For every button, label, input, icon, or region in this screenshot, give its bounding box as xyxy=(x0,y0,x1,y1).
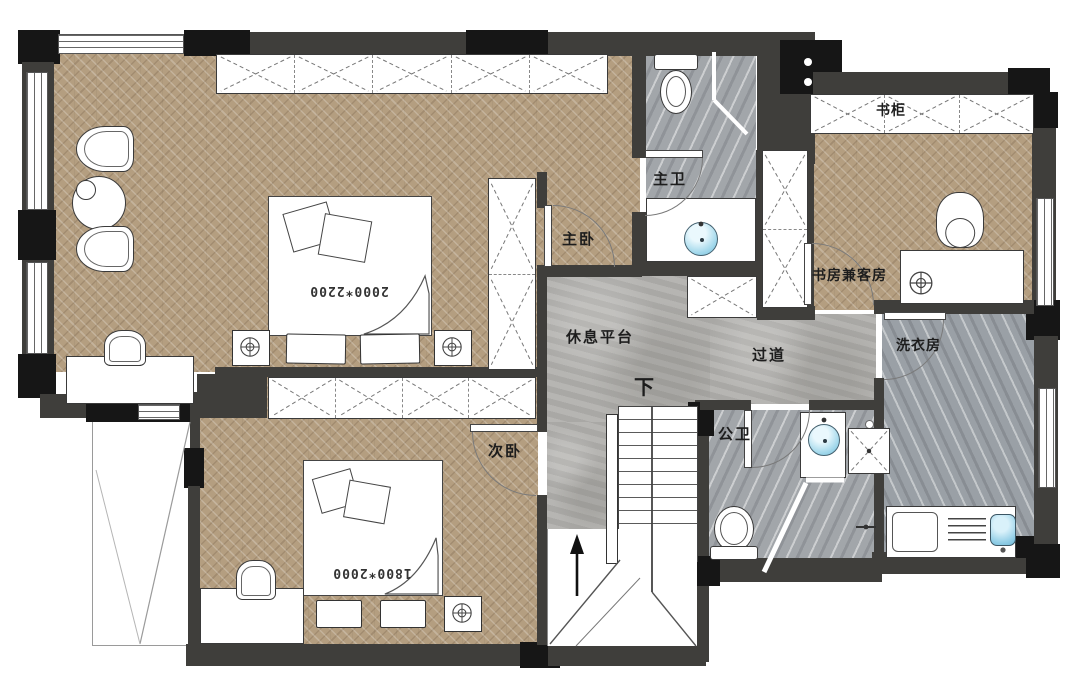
hall-closet xyxy=(687,276,757,318)
master-bed-size-label: 2000*2200 xyxy=(269,283,429,298)
wall-top-bath xyxy=(548,32,760,56)
wall-stub-masterdoor xyxy=(537,172,547,208)
label-laundry: 洗衣房 xyxy=(896,338,941,352)
lounge-chair xyxy=(76,126,134,172)
wall-column-right3 xyxy=(1026,544,1060,578)
wall-column-top1 xyxy=(184,30,250,56)
wall-pubbath-top-right xyxy=(809,400,880,410)
wall-column-left2 xyxy=(18,354,56,398)
label-stairs-down: 下 xyxy=(634,378,654,398)
label-rest-platform: 休息平台 xyxy=(566,330,634,345)
study-door-leaf xyxy=(804,243,812,305)
floor-plan: 2000*2200 1800*2000 xyxy=(0,0,1080,684)
wall-block-wardrobe-left xyxy=(197,374,267,418)
bench-cushion xyxy=(286,333,347,364)
label-corridor: 过道 xyxy=(752,348,786,363)
window-study xyxy=(1036,198,1054,306)
desk-lamp-symbol-icon xyxy=(908,270,934,296)
lamp-symbol-icon xyxy=(451,602,473,624)
master-desk-chair xyxy=(104,330,146,366)
wall-top-study xyxy=(813,72,1011,94)
window-left-lower xyxy=(26,262,48,354)
wall-top-master xyxy=(250,32,466,56)
master-wardrobe-side xyxy=(488,178,536,370)
washer-door xyxy=(990,514,1016,546)
bench-cushion xyxy=(380,600,426,628)
wall-column-top2 xyxy=(466,30,548,56)
wall-bottom-secondbed xyxy=(186,644,548,666)
terrace-area xyxy=(92,420,196,646)
wall-column-left1 xyxy=(18,210,56,260)
second-bedroom-door-leaf xyxy=(470,424,538,432)
stair-landing xyxy=(547,529,697,646)
wall-column-secondbed xyxy=(184,448,204,488)
table-kettle xyxy=(76,180,96,200)
label-bookcase: 书柜 xyxy=(876,103,906,117)
wall-pubbath-bottom xyxy=(700,558,882,582)
wall-bottom-stairs xyxy=(548,646,706,666)
bench-cushion xyxy=(360,333,421,364)
master-bath-door-leaf xyxy=(645,150,703,158)
master-toilet-bowl xyxy=(660,70,692,114)
window-left-upper xyxy=(26,72,48,210)
master-bath-basin xyxy=(684,222,718,256)
lounge-chair xyxy=(76,226,134,272)
wall-laundry-left xyxy=(874,378,884,574)
dresser-chair xyxy=(236,560,276,600)
wall-corridor-top xyxy=(757,306,815,320)
label-study-guest: 书房兼客房 xyxy=(812,268,887,282)
master-bedroom-door-leaf xyxy=(544,205,552,267)
column-dot-2 xyxy=(804,78,812,86)
washer-vents xyxy=(948,518,986,546)
wall-bath-left-lower xyxy=(632,212,646,267)
window-laundry xyxy=(1038,388,1056,488)
laundry-door-leaf xyxy=(884,312,946,320)
stair-railing xyxy=(606,414,618,564)
wall-bedrooms-platform-upper xyxy=(537,265,547,432)
platform-strip-floor xyxy=(547,422,610,529)
wall-bath-bottom xyxy=(632,262,762,276)
second-wardrobe xyxy=(268,377,536,419)
shower-tray xyxy=(848,428,890,474)
label-master-bath: 主卫 xyxy=(653,172,687,187)
study-closet xyxy=(762,150,808,308)
master-bed: 2000*2200 xyxy=(268,196,432,336)
public-bath-basin xyxy=(808,424,840,456)
corridor-floor xyxy=(710,314,876,404)
bench-cushion xyxy=(316,600,362,628)
wall-bedrooms-platform-lower xyxy=(537,495,547,645)
label-second-bedroom: 次卧 xyxy=(488,444,522,459)
public-toilet-base xyxy=(710,546,758,560)
master-wardrobe-top xyxy=(216,54,608,94)
wall-bath-left-upper xyxy=(632,52,646,158)
lamp-symbol-icon xyxy=(441,336,463,358)
study-chair xyxy=(936,192,984,248)
blanket-fold xyxy=(269,197,431,335)
second-bed-size-label: 1800*2000 xyxy=(304,565,440,580)
wall-pubbath-top-left xyxy=(700,400,751,410)
label-master-bedroom: 主卧 xyxy=(562,232,596,247)
second-bed: 1800*2000 xyxy=(303,460,443,596)
window-under-desk xyxy=(138,404,180,420)
wall-secondbed-left-lower xyxy=(188,486,200,648)
label-public-bath: 公卫 xyxy=(718,427,752,442)
bookcase xyxy=(810,94,1034,134)
master-toilet-tank xyxy=(654,54,698,70)
window-top-left xyxy=(58,34,184,54)
wall-corner-topleft xyxy=(18,30,60,64)
laundry-sink xyxy=(892,512,938,552)
column-dot-1 xyxy=(804,58,812,66)
lamp-symbol-icon xyxy=(239,336,261,358)
